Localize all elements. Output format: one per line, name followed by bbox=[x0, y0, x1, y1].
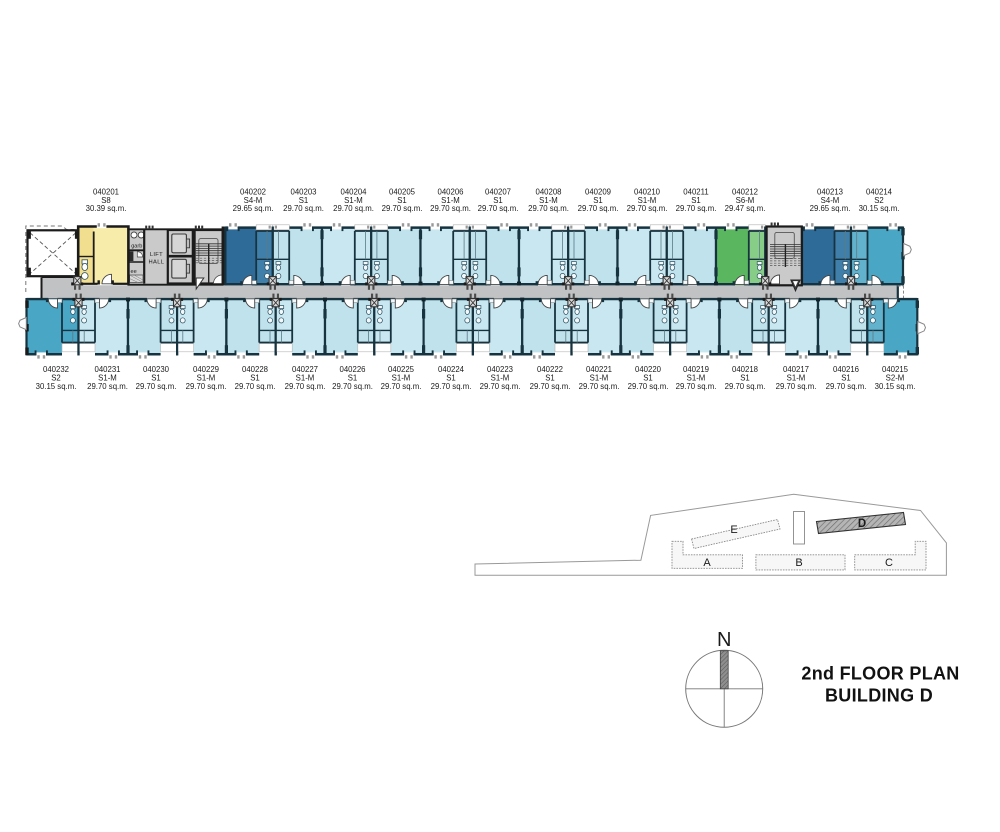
svg-text:29.70 sq.m.: 29.70 sq.m. bbox=[186, 382, 227, 391]
svg-text:29.70 sq.m.: 29.70 sq.m. bbox=[283, 204, 324, 213]
svg-text:ee: ee bbox=[130, 269, 136, 275]
svg-text:BUILDING D: BUILDING D bbox=[825, 686, 933, 706]
svg-text:29.70 sq.m.: 29.70 sq.m. bbox=[431, 382, 472, 391]
svg-text:30.39 sq.m.: 30.39 sq.m. bbox=[86, 204, 127, 213]
svg-text:29.65 sq.m.: 29.65 sq.m. bbox=[810, 204, 851, 213]
svg-text:29.70 sq.m.: 29.70 sq.m. bbox=[87, 382, 128, 391]
svg-text:29.70 sq.m.: 29.70 sq.m. bbox=[430, 204, 471, 213]
svg-text:29.70 sq.m.: 29.70 sq.m. bbox=[136, 382, 177, 391]
svg-text:29.70 sq.m.: 29.70 sq.m. bbox=[676, 382, 717, 391]
svg-text:HALL: HALL bbox=[149, 260, 165, 266]
svg-text:29.70 sq.m.: 29.70 sq.m. bbox=[579, 382, 620, 391]
svg-text:30.15 sq.m.: 30.15 sq.m. bbox=[859, 204, 900, 213]
svg-text:29.70 sq.m.: 29.70 sq.m. bbox=[627, 204, 668, 213]
svg-text:29.70 sq.m.: 29.70 sq.m. bbox=[530, 382, 571, 391]
svg-text:A: A bbox=[703, 557, 711, 569]
svg-text:C: C bbox=[885, 557, 893, 569]
svg-text:29.70 sq.m.: 29.70 sq.m. bbox=[381, 382, 422, 391]
svg-text:29.70 sq.m.: 29.70 sq.m. bbox=[528, 204, 569, 213]
svg-text:LIFT: LIFT bbox=[150, 252, 163, 258]
svg-text:29.70 sq.m.: 29.70 sq.m. bbox=[776, 382, 817, 391]
svg-text:D: D bbox=[858, 518, 866, 530]
svg-text:29.70 sq.m.: 29.70 sq.m. bbox=[235, 382, 276, 391]
svg-text:29.70 sq.m.: 29.70 sq.m. bbox=[628, 382, 669, 391]
svg-text:29.65 sq.m.: 29.65 sq.m. bbox=[233, 204, 274, 213]
svg-text:29.47 sq.m.: 29.47 sq.m. bbox=[725, 204, 766, 213]
svg-text:29.70 sq.m.: 29.70 sq.m. bbox=[725, 382, 766, 391]
svg-text:2nd FLOOR PLAN: 2nd FLOOR PLAN bbox=[801, 664, 959, 684]
svg-text:E: E bbox=[730, 524, 737, 536]
svg-text:29.70 sq.m.: 29.70 sq.m. bbox=[478, 204, 519, 213]
svg-text:29.70 sq.m.: 29.70 sq.m. bbox=[333, 204, 374, 213]
svg-text:29.70 sq.m.: 29.70 sq.m. bbox=[480, 382, 521, 391]
svg-text:garb: garb bbox=[131, 244, 142, 250]
svg-text:N: N bbox=[717, 629, 731, 651]
svg-text:29.70 sq.m.: 29.70 sq.m. bbox=[578, 204, 619, 213]
svg-text:B: B bbox=[795, 557, 802, 569]
svg-text:29.70 sq.m.: 29.70 sq.m. bbox=[826, 382, 867, 391]
svg-text:30.15 sq.m.: 30.15 sq.m. bbox=[36, 382, 77, 391]
svg-text:29.70 sq.m.: 29.70 sq.m. bbox=[676, 204, 717, 213]
svg-text:29.70 sq.m.: 29.70 sq.m. bbox=[332, 382, 373, 391]
svg-text:29.70 sq.m.: 29.70 sq.m. bbox=[382, 204, 423, 213]
svg-text:30.15 sq.m.: 30.15 sq.m. bbox=[875, 382, 916, 391]
svg-text:29.70 sq.m.: 29.70 sq.m. bbox=[285, 382, 326, 391]
